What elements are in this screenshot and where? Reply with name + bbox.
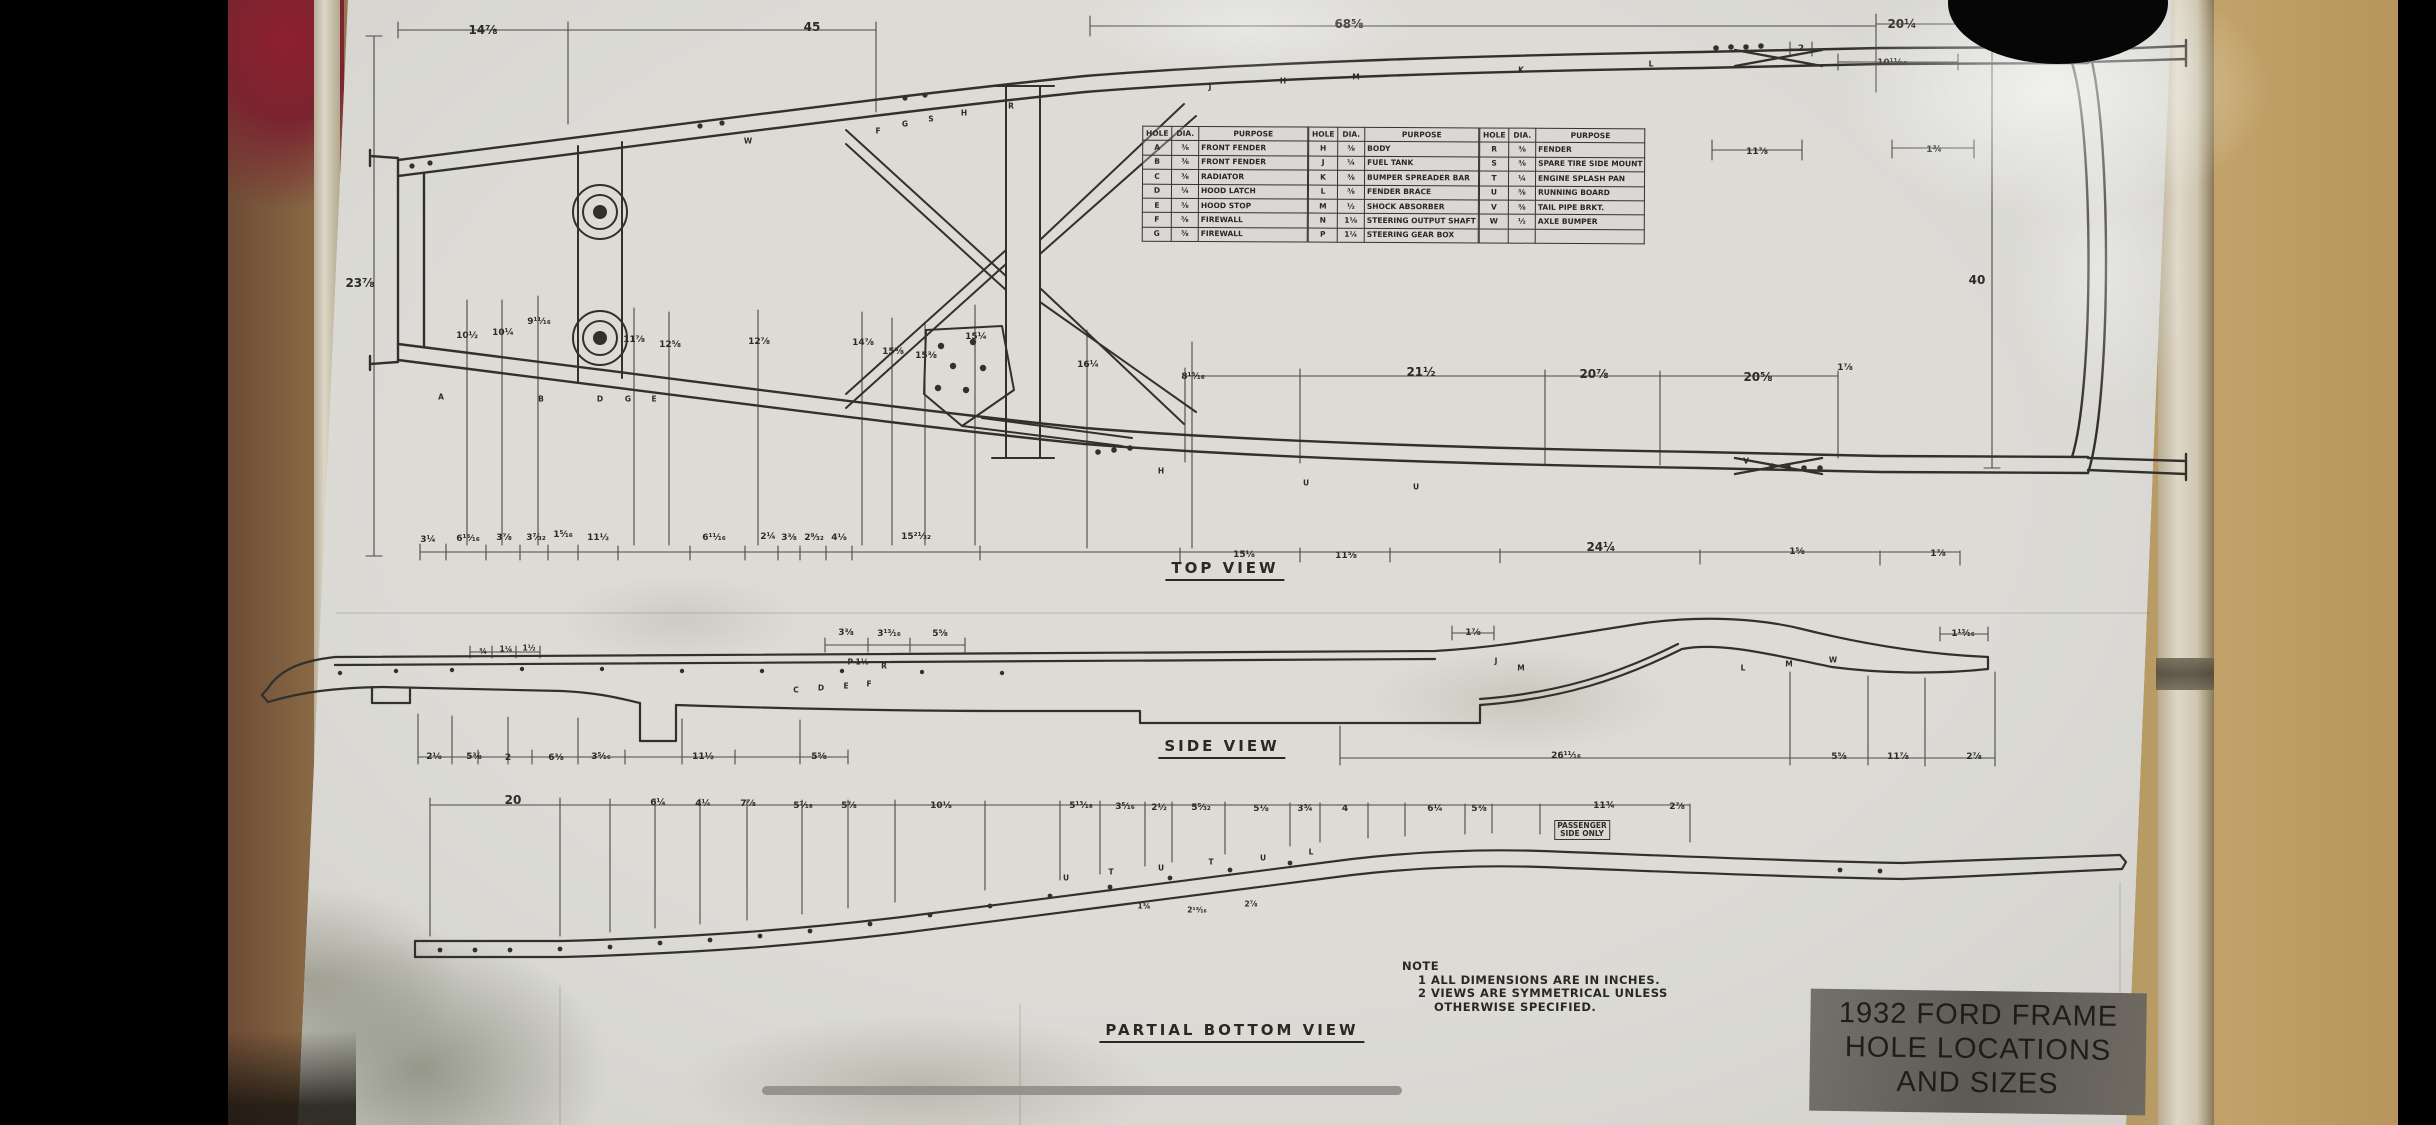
table-row: W ½ AXLE BUMPER: [1479, 214, 1644, 229]
hole-letter: W: [1479, 214, 1508, 229]
hole-diameter: ⅜: [1172, 170, 1199, 185]
top-view-label: TOP VIEW: [1165, 559, 1284, 581]
hole-diameter: ⅜: [1172, 141, 1199, 156]
hole-letter: P: [1308, 228, 1337, 243]
dimension-label: 16¼: [1077, 360, 1099, 370]
dimension-label: R: [881, 662, 887, 671]
dimension-label: 24¼: [1586, 540, 1615, 554]
dimension-label: 6¼: [650, 798, 666, 808]
dimension-label: 3⅜: [781, 533, 797, 543]
note-line: OTHERWISE SPECIFIED.: [1434, 1001, 1712, 1015]
dimension-label: 11½: [692, 752, 714, 762]
hole-letter: U: [1479, 186, 1508, 201]
col-header-hole: HOLE: [1143, 126, 1172, 141]
hole-diameter: ⅜: [1508, 186, 1535, 201]
hole-letter: C: [1143, 169, 1172, 184]
dimension-label: 20⅞: [1579, 367, 1608, 381]
dimension-label: 1½: [523, 644, 536, 653]
col-header-purpose: PURPOSE: [1536, 128, 1645, 143]
dimension-label: U: [1158, 864, 1164, 873]
hole-letter: S: [1480, 157, 1509, 172]
table-row: B ⅜ FRONT FENDER: [1143, 155, 1308, 170]
dimension-label: 12⅝: [659, 340, 681, 350]
dimension-label: E: [843, 682, 848, 691]
table-row: G ⅜ FIREWALL: [1142, 227, 1307, 242]
dimension-label: 5⅜: [1471, 804, 1487, 814]
col-header-dia: DIA.: [1509, 128, 1536, 143]
hole-purpose: BUMPER SPREADER BAR: [1365, 171, 1479, 186]
side-view-label: SIDE VIEW: [1158, 737, 1285, 759]
hole-letter: A: [1143, 141, 1172, 156]
dimension-label: 3¹³⁄₁₆: [877, 629, 901, 639]
dimension-label: V: [1743, 457, 1749, 466]
dimension-label: M: [1517, 664, 1524, 673]
hole-letter: M: [1308, 199, 1337, 214]
hole-diameter: 1⅛: [1337, 214, 1364, 229]
dimension-label: U: [1413, 483, 1419, 492]
col-header-purpose: PURPOSE: [1365, 127, 1479, 142]
hole-purpose: FENDER: [1536, 143, 1645, 158]
dimension-label: 1⅞: [1930, 549, 1946, 559]
table-row: T ¼ ENGINE SPLASH PAN: [1479, 171, 1644, 186]
table-row: [1479, 229, 1644, 244]
dimension-label: 14⅞: [852, 338, 874, 348]
note-line: 2 VIEWS ARE SYMMETRICAL UNLESS: [1418, 987, 1712, 1001]
dimension-label: 5⅜: [466, 752, 482, 762]
hole-diameter: ⅜: [1172, 155, 1199, 170]
dimension-label: 2¼: [760, 532, 776, 542]
hole-purpose: TAIL PIPE BRKT.: [1535, 200, 1644, 215]
dimension-label: T: [1108, 868, 1113, 877]
dimension-label: 6¹¹⁄₁₆: [702, 533, 726, 543]
hole-letter: H: [1309, 141, 1338, 156]
dimension-label: 11½: [587, 533, 609, 543]
dimension-label: M: [1785, 660, 1792, 669]
dimension-label: K: [1518, 66, 1524, 75]
dimension-label: 5⅝: [811, 752, 827, 762]
hole-purpose: FIREWALL: [1198, 213, 1307, 228]
dimension-label: 3¼: [420, 535, 436, 545]
dimension-label: 23⅞: [345, 276, 374, 290]
drawing-note: NOTE 1 ALL DIMENSIONS ARE IN INCHES.2 VI…: [1402, 960, 1712, 1014]
table-row: P 1¼ STEERING GEAR BOX: [1308, 228, 1478, 243]
dimension-label: 15⅝: [882, 347, 904, 357]
dimension-label: 11¾: [1593, 801, 1615, 811]
dimension-label: 45: [804, 20, 821, 34]
col-header-dia: DIA.: [1338, 127, 1365, 142]
photo-of-blueprint: 14⅞4568⅝20¼210¹¹⁄₁₆23⅞4011⅞1¾10½10¼9¹¹⁄₁…: [0, 0, 2436, 1125]
hole-purpose: STEERING OUTPUT SHAFT: [1364, 214, 1478, 229]
hole-purpose: FENDER BRACE: [1364, 185, 1478, 200]
dimension-label: ¾: [479, 647, 487, 656]
dimension-label: 5⅝: [932, 629, 948, 639]
hole-purpose: AXLE BUMPER: [1535, 215, 1644, 230]
dimension-label: D: [818, 684, 824, 693]
dimension-label: 20: [505, 793, 522, 807]
hole-letter: D: [1142, 184, 1171, 199]
hole-purpose: HOOD STOP: [1198, 198, 1307, 213]
dimension-label: H: [961, 109, 967, 118]
dimension-label: U: [1063, 874, 1069, 883]
dimension-label: 3⅜: [838, 628, 854, 638]
hole-diameter: ¼: [1508, 171, 1535, 186]
dimension-label: B: [538, 395, 544, 404]
dimension-label: J: [1495, 657, 1498, 666]
table-row: M ½ SHOCK ABSORBER: [1308, 199, 1478, 214]
dimension-label: 11⅞: [1746, 147, 1768, 157]
dimension-label: 1⁵⁄₁₆: [553, 530, 573, 540]
dimension-label: 15²¹⁄₃₂: [901, 532, 931, 542]
dimension-label: 1⅞: [1465, 628, 1481, 638]
dimension-label: PASSENGER SIDE ONLY: [1554, 820, 1610, 840]
dimension-label: 10⅛: [930, 801, 952, 811]
hole-purpose: STEERING GEAR BOX: [1364, 228, 1478, 243]
hole-diameter: [1508, 229, 1535, 244]
dimension-label: H: [1280, 77, 1286, 86]
dimension-label: U: [1303, 479, 1309, 488]
dimension-label: 14⅞: [468, 23, 497, 37]
table-row: C ⅜ RADIATOR: [1143, 169, 1308, 184]
hole-purpose: SHOCK ABSORBER: [1364, 199, 1478, 214]
dimension-label: 20¼: [1887, 17, 1916, 31]
table-row: V ⅜ TAIL PIPE BRKT.: [1479, 200, 1644, 215]
dimension-label: 11⅝: [1335, 551, 1357, 561]
dimension-label: 3⁷⁄₃₂: [526, 533, 546, 543]
table-row: J ¼ FUEL TANK: [1309, 156, 1479, 171]
hole-letter: J: [1309, 156, 1338, 171]
table-row: E ⅜ HOOD STOP: [1142, 198, 1307, 213]
dimension-label: 20⅝: [1743, 370, 1772, 384]
dimension-label: T: [1208, 858, 1213, 867]
dimension-label: 26¹¹⁄₁₆: [1551, 751, 1581, 761]
hole-diameter: ⅜: [1508, 200, 1535, 215]
hole-table-group-1: HOLE DIA. PURPOSE A ⅜ FRONT FENDER B ⅜ F…: [1142, 126, 1309, 243]
dimension-label: 1⅞: [1837, 363, 1853, 373]
dimension-label: L: [1309, 848, 1314, 857]
dimension-label: G: [625, 395, 631, 404]
dimension-label: 5⅛: [1253, 804, 1269, 814]
title-line-2: HOLE LOCATIONS: [1810, 1030, 2146, 1069]
note-title: NOTE: [1402, 960, 1712, 974]
hole-diameter: ⅜: [1338, 170, 1365, 185]
dimension-label: 12⅞: [748, 337, 770, 347]
hole-purpose: ENGINE SPLASH PAN: [1535, 171, 1644, 186]
hole-diameter: 1¼: [1337, 228, 1364, 243]
dimension-label: 4⅛: [831, 533, 847, 543]
hole-diameter: ⅜: [1338, 142, 1365, 157]
dimension-label: A: [438, 393, 444, 402]
dimension-label: 5⅝: [1831, 752, 1847, 762]
table-row: R ⅜ FENDER: [1480, 142, 1645, 157]
col-header-dia: DIA.: [1172, 126, 1199, 141]
dimension-label: J: [1209, 83, 1212, 92]
dimension-label: F: [866, 680, 871, 689]
hole-table: HOLE DIA. PURPOSE A ⅜ FRONT FENDER B ⅜ F…: [1142, 126, 1646, 245]
dimension-label: 6⅜: [548, 753, 564, 763]
dimension-label: 6¼: [1427, 804, 1443, 814]
dimension-label: P 1⅛: [847, 658, 868, 667]
hole-letter: R: [1480, 142, 1509, 157]
dimension-label: W: [744, 137, 752, 146]
hole-diameter: ⅜: [1171, 227, 1198, 242]
hole-diameter: ⅜: [1509, 157, 1536, 172]
dimension-label: 2½: [1151, 803, 1167, 813]
hole-diameter: ½: [1337, 199, 1364, 214]
hole-diameter: ⅜: [1509, 142, 1536, 157]
table-row: D ¼ HOOD LATCH: [1142, 184, 1307, 199]
hole-diameter: ⅜: [1171, 213, 1198, 228]
dimension-label: 7⅞: [740, 799, 756, 809]
table-row: A ⅜ FRONT FENDER: [1143, 141, 1308, 156]
right-letterbox-bar: [2398, 0, 2436, 1125]
col-header-hole: HOLE: [1309, 127, 1338, 142]
dimension-label: 2: [1798, 44, 1804, 54]
dimension-label: 68⅝: [1334, 17, 1363, 31]
hole-letter: E: [1142, 198, 1171, 213]
hole-table-group-2: HOLE DIA. PURPOSE H ⅜ BODY J ¼ FUEL TANK…: [1308, 127, 1480, 244]
dimension-label: 15⅜: [915, 351, 937, 361]
hole-letter: B: [1143, 155, 1172, 170]
hole-purpose: HOOD LATCH: [1198, 184, 1307, 199]
dimension-label: 4¼: [695, 799, 711, 809]
hole-diameter: ¼: [1338, 156, 1365, 171]
dimension-label: S: [928, 115, 933, 124]
table-row: S ⅜ SPARE TIRE SIDE MOUNT: [1480, 157, 1645, 172]
dimension-label: 1¾: [1926, 145, 1942, 155]
dimension-label: U: [1260, 854, 1266, 863]
table-row: N 1⅛ STEERING OUTPUT SHAFT: [1308, 213, 1478, 228]
hole-purpose: FIREWALL: [1198, 227, 1307, 242]
dimension-label: 10¼: [492, 328, 514, 338]
hole-purpose: RUNNING BOARD: [1535, 186, 1644, 201]
dimension-label: 8¹³⁄₁₆: [1181, 372, 1205, 382]
hole-diameter: ⅜: [1171, 198, 1198, 213]
dimension-label: 3⁵⁄₁₆: [1115, 802, 1135, 812]
dimension-label: 6¹³⁄₁₆: [456, 534, 480, 544]
dimension-label: 9¹¹⁄₁₆: [527, 317, 551, 327]
dimension-label: 2⁹⁄₃₂: [804, 533, 824, 543]
dimension-label: 10½: [456, 331, 478, 341]
dimension-label: 5¹³⁄₁₆: [1069, 801, 1093, 811]
hole-purpose: BODY: [1365, 142, 1479, 157]
table-row: H ⅜ BODY: [1309, 141, 1479, 156]
dimension-label: 5⅞: [841, 801, 857, 811]
col-header-purpose: PURPOSE: [1199, 126, 1308, 141]
hole-purpose: SPARE TIRE SIDE MOUNT: [1536, 157, 1645, 172]
title-line-3: AND SIZES: [1809, 1064, 2145, 1103]
hole-table-group-3: HOLE DIA. PURPOSE R ⅜ FENDER S ⅜ SPARE T…: [1479, 127, 1646, 244]
dimension-label: 2⅞: [1966, 752, 1982, 762]
dimension-label: L: [1741, 664, 1746, 673]
hole-diameter: ¼: [1171, 184, 1198, 199]
table-row: K ⅜ BUMPER SPREADER BAR: [1309, 170, 1479, 185]
hole-letter: T: [1479, 171, 1508, 186]
hole-letter: L: [1308, 185, 1337, 200]
hole-purpose: FUEL TANK: [1365, 156, 1479, 171]
dimension-label: 2⅞: [1669, 802, 1685, 812]
title-line-1: 1932 FORD FRAME: [1810, 996, 2146, 1035]
title-block: 1932 FORD FRAME HOLE LOCATIONS AND SIZES: [1809, 989, 2147, 1116]
dimension-label: 5⁷⁄₁₆: [793, 801, 813, 811]
dimension-label: M: [1352, 73, 1359, 82]
hole-letter: G: [1142, 227, 1171, 242]
dimension-label: F: [875, 127, 880, 136]
hole-letter: V: [1479, 200, 1508, 215]
dimension-label: 2¹³⁄₁₆: [1187, 906, 1207, 915]
left-letterbox-bar: [0, 0, 228, 1125]
dimension-label: H: [1158, 467, 1164, 476]
dimension-label: 21½: [1406, 365, 1435, 379]
dimension-label: 15¼: [965, 332, 987, 342]
partial-bottom-view-label: PARTIAL BOTTOM VIEW: [1099, 1021, 1364, 1043]
col-header-hole: HOLE: [1480, 128, 1509, 143]
table-row: L ⅜ FENDER BRACE: [1308, 185, 1478, 200]
hole-purpose: FRONT FENDER: [1199, 155, 1308, 170]
hole-purpose: RADIATOR: [1199, 170, 1308, 185]
dimension-label: L: [1649, 60, 1654, 69]
dimension-label: E: [651, 395, 656, 404]
home-indicator[interactable]: [762, 1086, 1402, 1095]
dimension-label: 2⅞: [1245, 900, 1258, 909]
dimension-label: 1¹³⁄₁₆: [1951, 629, 1975, 639]
dimension-label: 10¹¹⁄₁₆: [1877, 58, 1907, 68]
dimension-label: R: [1008, 102, 1014, 111]
hole-letter: N: [1308, 213, 1337, 228]
dimension-label: 4: [1342, 804, 1348, 814]
dimension-label: 3¾: [1297, 804, 1313, 814]
hole-letter: K: [1309, 170, 1338, 185]
table-row: F ⅜ FIREWALL: [1142, 213, 1307, 228]
dimension-label: 1⅝: [1789, 547, 1805, 557]
dimension-label: D: [597, 395, 603, 404]
dimension-label: 2: [505, 753, 511, 763]
dimension-label: 11⅞: [623, 335, 645, 345]
dimension-label: G: [902, 120, 908, 129]
hole-purpose: FRONT FENDER: [1199, 141, 1308, 156]
dimension-label: W: [1829, 656, 1837, 665]
dimension-label: 1¾: [1138, 902, 1151, 911]
hole-letter: [1479, 229, 1508, 244]
dimension-label: 2⅛: [426, 752, 442, 762]
dimension-label: 3⅞: [496, 533, 512, 543]
dimension-label: 3⁵⁄₁₆: [591, 752, 611, 762]
hole-purpose: [1535, 229, 1644, 244]
hole-letter: F: [1142, 213, 1171, 228]
note-line: 1 ALL DIMENSIONS ARE IN INCHES.: [1418, 974, 1712, 988]
dimension-label: 40: [1969, 273, 1986, 287]
hole-diameter: ⅜: [1337, 185, 1364, 200]
hole-diameter: ½: [1508, 214, 1535, 229]
dimension-label: 5⁵⁄₃₂: [1191, 803, 1211, 813]
dimension-label: C: [793, 686, 799, 695]
dimension-label: 11⅞: [1887, 752, 1909, 762]
dimension-label: 1¼: [500, 645, 513, 654]
table-row: U ⅜ RUNNING BOARD: [1479, 186, 1644, 201]
